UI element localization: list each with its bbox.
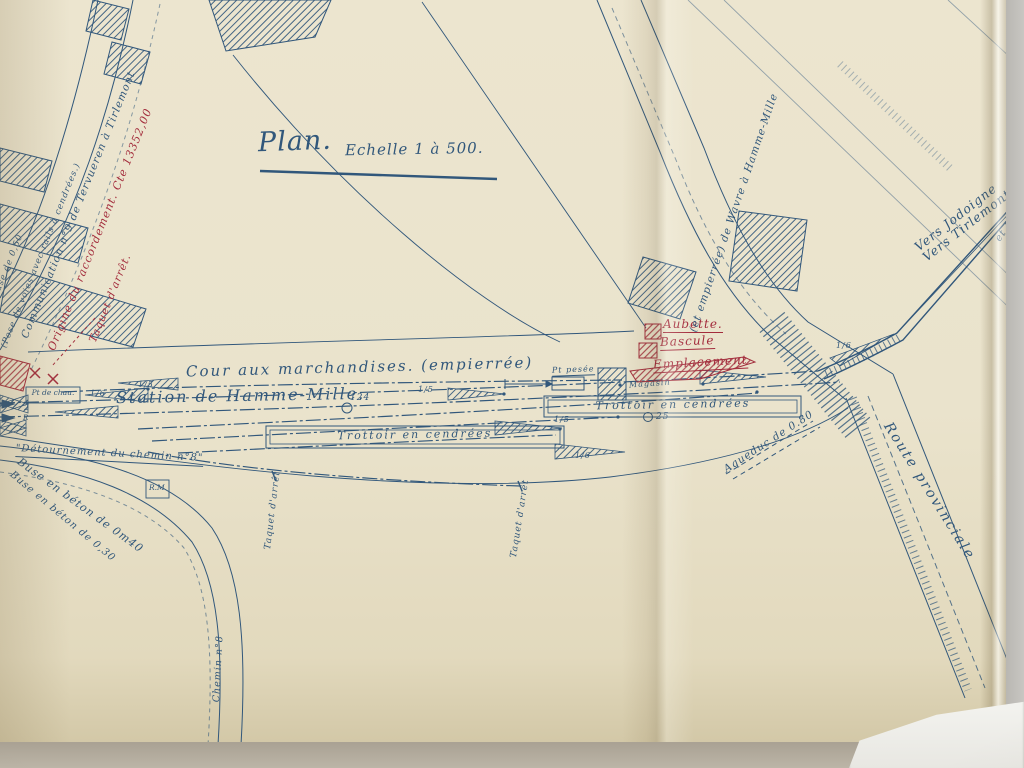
red-area-left: [0, 356, 30, 391]
turnout-ratio: 1/5: [138, 381, 154, 389]
label-rm: R.M: [149, 484, 165, 492]
mark-2: 2: [24, 405, 29, 412]
plan-title: Plan.: [258, 127, 333, 158]
route-provinciale-road: [846, 374, 1012, 698]
weighbridge: [505, 377, 584, 390]
km-post-124: [342, 403, 352, 413]
turnout-ratio: 1/5: [418, 386, 434, 394]
turnout-ratio: 1/6: [575, 452, 591, 460]
label-pt-chaux: Pt de chau.: [27, 389, 79, 397]
turnout-ratio: 1/6: [836, 342, 852, 350]
photo-of-railway-plan: Plan. Echelle 1 à 500. Cour aux marchand…: [0, 0, 1024, 768]
plan-scale: Echelle 1 à 500.: [345, 141, 484, 159]
table-surface-right: [1006, 0, 1024, 768]
grand-route: [597, 0, 893, 400]
title-underline: [260, 171, 497, 179]
turnout-ratio: 1/5: [554, 416, 570, 424]
boundary-line-1: [422, 2, 646, 328]
level-crossing-band: [772, 322, 858, 428]
km-mark-124: 124: [350, 394, 370, 403]
turnout-ratio: 1/6: [90, 390, 106, 398]
label-weighbridge: Pt pesée: [552, 365, 595, 377]
km-mark-25: 25: [656, 413, 669, 422]
mark-r: R: [23, 415, 29, 422]
label-bascule: Bascule: [660, 334, 715, 350]
boundary-line-2: [233, 55, 560, 342]
aqueduc-lines: [726, 421, 820, 479]
red-x-marks: [30, 368, 58, 384]
aubette-square: [645, 324, 661, 339]
bascule-square: [639, 343, 657, 358]
